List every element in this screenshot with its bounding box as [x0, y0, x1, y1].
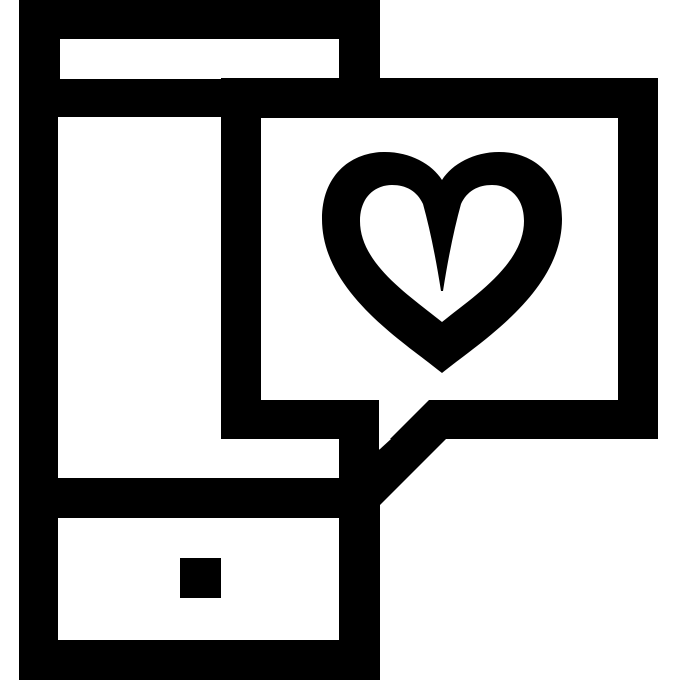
home-button — [180, 558, 221, 598]
smartphone-heart-message-icon — [0, 0, 680, 680]
icon-canvas — [0, 0, 680, 680]
phone-speaker-slot — [60, 39, 339, 79]
